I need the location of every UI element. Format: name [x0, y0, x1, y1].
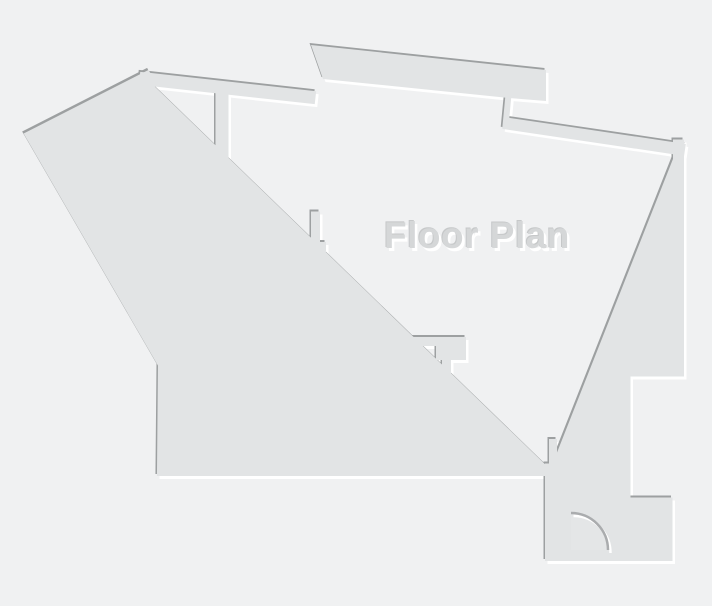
- title-main: Floor Plan: [384, 215, 570, 256]
- floor-plan-page: Floor Plan Floor Plan Floor Plan: [0, 0, 712, 606]
- floor-plan-title: Floor Plan Floor Plan Floor Plan: [383, 214, 572, 259]
- floor-plan-canvas: Floor Plan Floor Plan Floor Plan: [0, 0, 712, 606]
